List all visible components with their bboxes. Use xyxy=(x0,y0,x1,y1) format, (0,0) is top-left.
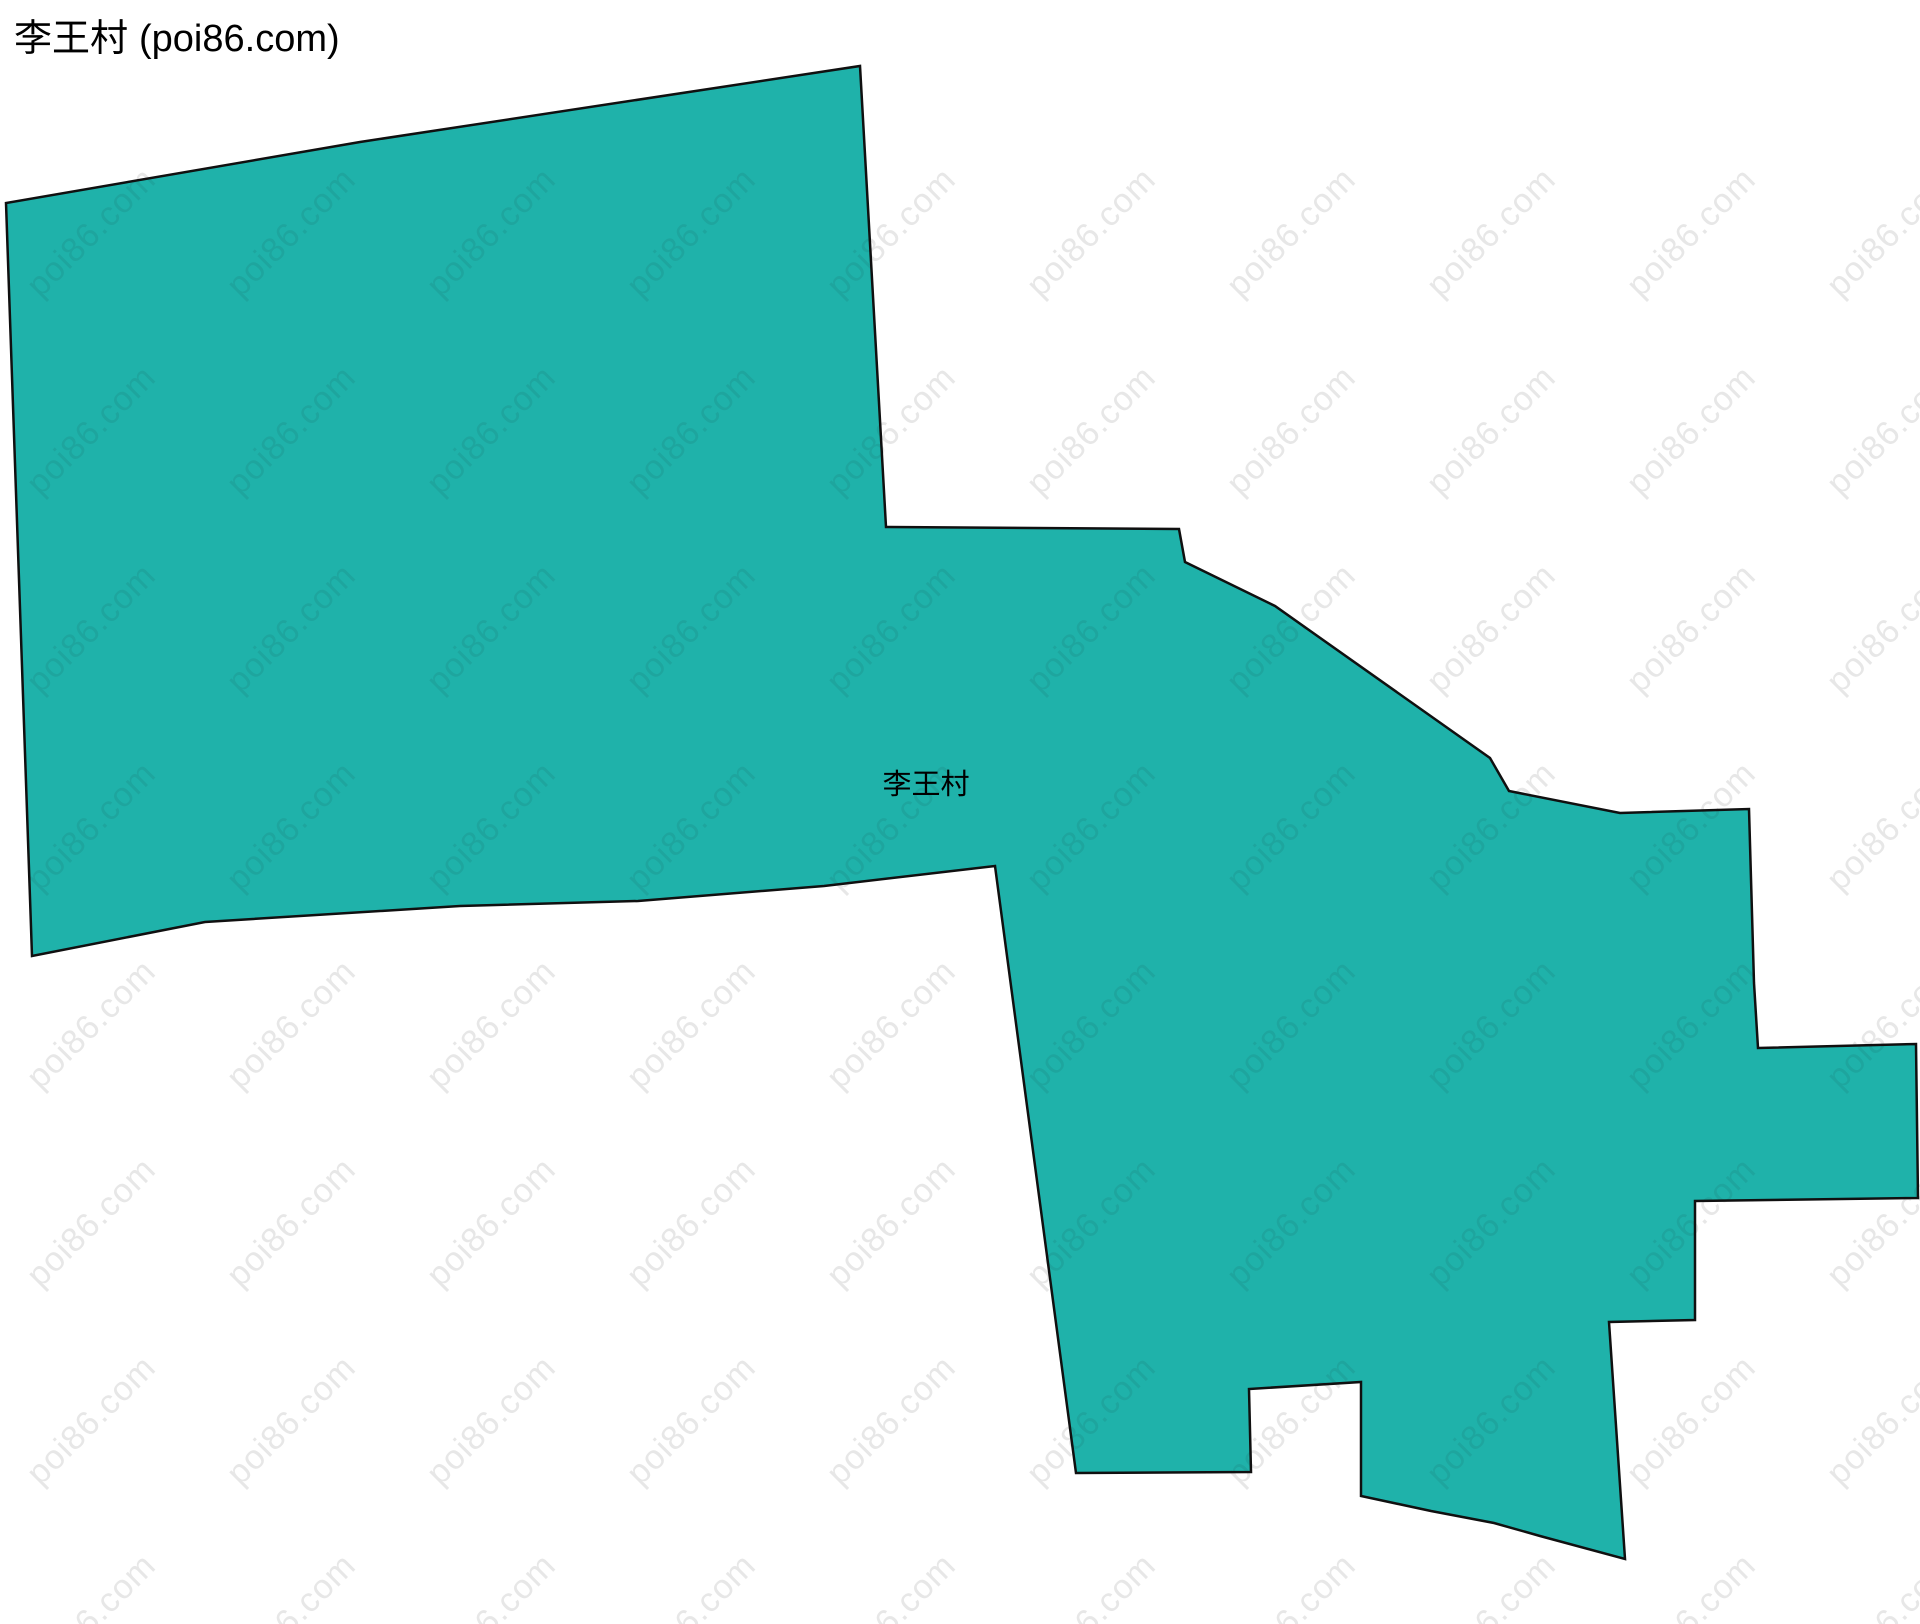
svg-text:(poi86.com): (poi86.com) xyxy=(139,18,340,60)
